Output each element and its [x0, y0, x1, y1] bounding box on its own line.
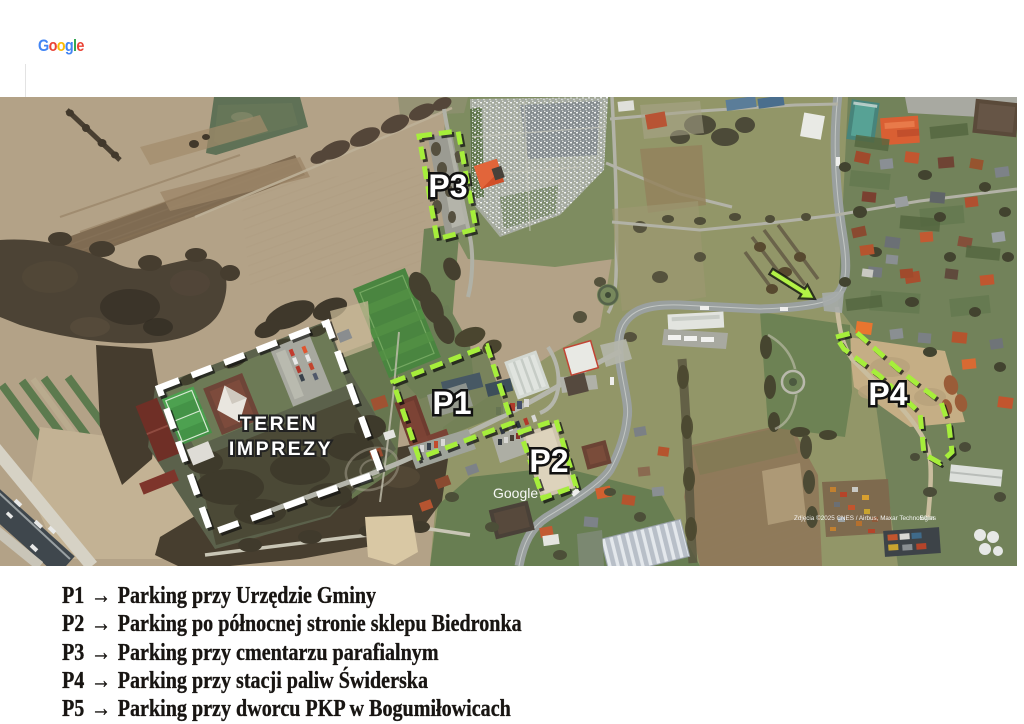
svg-text:P4: P4 [868, 376, 907, 412]
svg-text:50 m: 50 m [920, 515, 934, 522]
svg-text:Zdjęcia ©2025 CNES / Airbus, M: Zdjęcia ©2025 CNES / Airbus, Maxar Techn… [794, 514, 936, 522]
svg-text:Google: Google [493, 485, 538, 501]
svg-text:TEREN: TEREN [240, 413, 319, 435]
svg-text:P1: P1 [432, 385, 471, 421]
svg-text:IMPREZY: IMPREZY [229, 438, 333, 460]
svg-text:P2: P2 [529, 443, 568, 479]
svg-text:P3: P3 [428, 168, 467, 204]
